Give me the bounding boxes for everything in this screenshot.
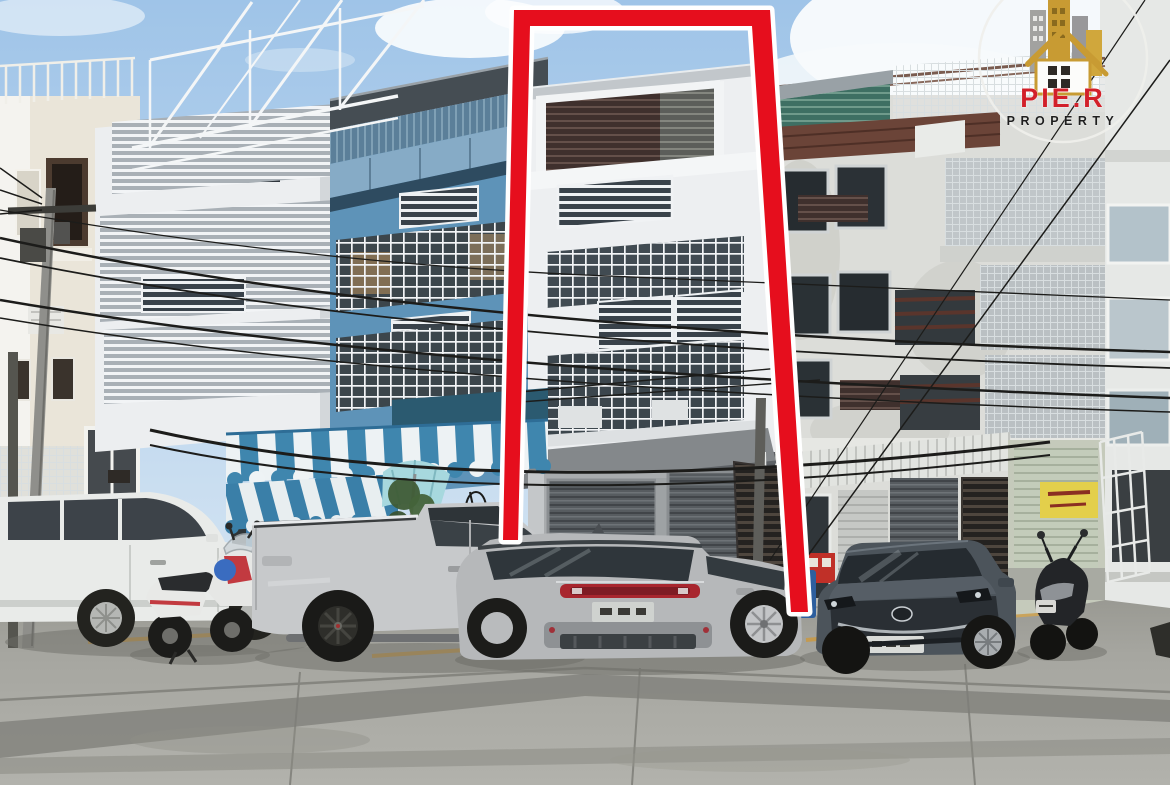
gray-louver-top: [660, 85, 718, 168]
far-right-building: [1100, 0, 1170, 625]
slat-window: [400, 186, 478, 228]
balcony-slat-railing: [558, 176, 672, 228]
side-mirror: [206, 534, 218, 542]
tailgate-handle: [262, 556, 292, 566]
ac-unit: [558, 406, 602, 428]
slat-window: [142, 278, 245, 312]
blue-helmet: [214, 559, 236, 581]
ac-unit: [652, 400, 688, 420]
wheel: [822, 626, 870, 674]
street-photo: PIE.R PROPERTY: [0, 0, 1170, 785]
brand-emblem: [892, 607, 912, 621]
wheel: [1030, 624, 1066, 660]
yellow-shop-sign: [1040, 482, 1098, 518]
side-mirror: [998, 578, 1014, 587]
logo-brand-text: PIE.R: [1020, 83, 1106, 113]
logo-tagline-text: PROPERTY: [1007, 114, 1120, 128]
slat-window: [676, 290, 742, 344]
photo-canvas: PIE.R PROPERTY: [0, 0, 1170, 785]
